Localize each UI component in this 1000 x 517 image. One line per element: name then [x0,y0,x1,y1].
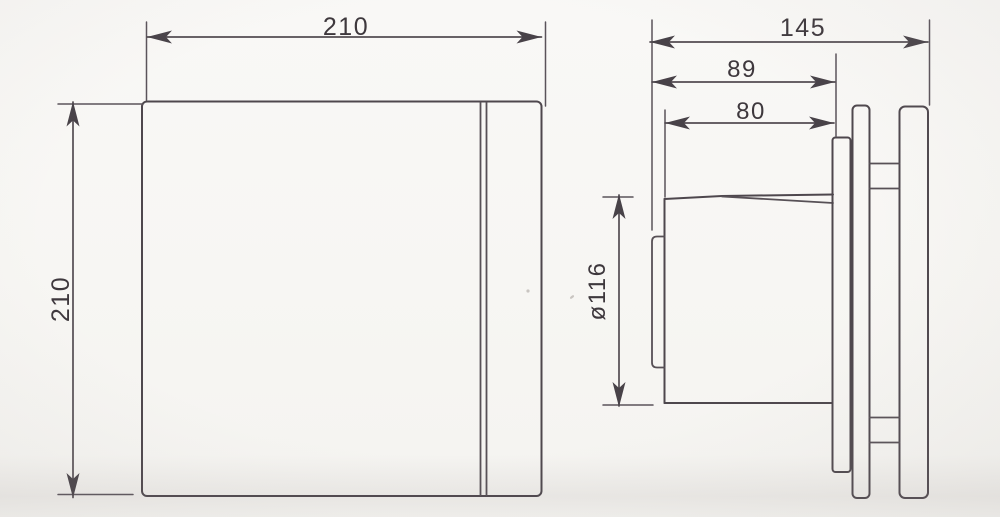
scan-speck [569,295,574,300]
back-mounting-plate [853,106,870,499]
side-mount-depth-label: 89 [727,56,757,83]
side-overall-depth-label: 145 [780,14,826,42]
side-duct-diameter-dimension: ø116 [584,194,653,407]
side-duct-length-dimension: 80 [665,98,834,197]
front-width-dimension: 210 [147,13,546,106]
front-view [142,102,542,497]
front-panel-outline [142,102,542,497]
duct-top-taper-line [722,197,833,204]
side-view [652,106,928,499]
front-height-dimension-label: 210 [47,276,75,322]
duct-end-lip [652,237,665,368]
front-height-dimension: 210 [47,102,143,499]
technical-drawing-page: 210 210 [0,0,1000,517]
scan-speck [526,289,529,292]
side-duct-length-label: 80 [736,98,766,125]
housing-flange-plate [833,138,851,473]
fan-dimension-drawing: 210 210 [0,0,1000,517]
side-duct-diameter-label: ø116 [584,262,611,321]
front-cover-edge [900,107,929,499]
front-width-dimension-label: 210 [323,13,369,41]
